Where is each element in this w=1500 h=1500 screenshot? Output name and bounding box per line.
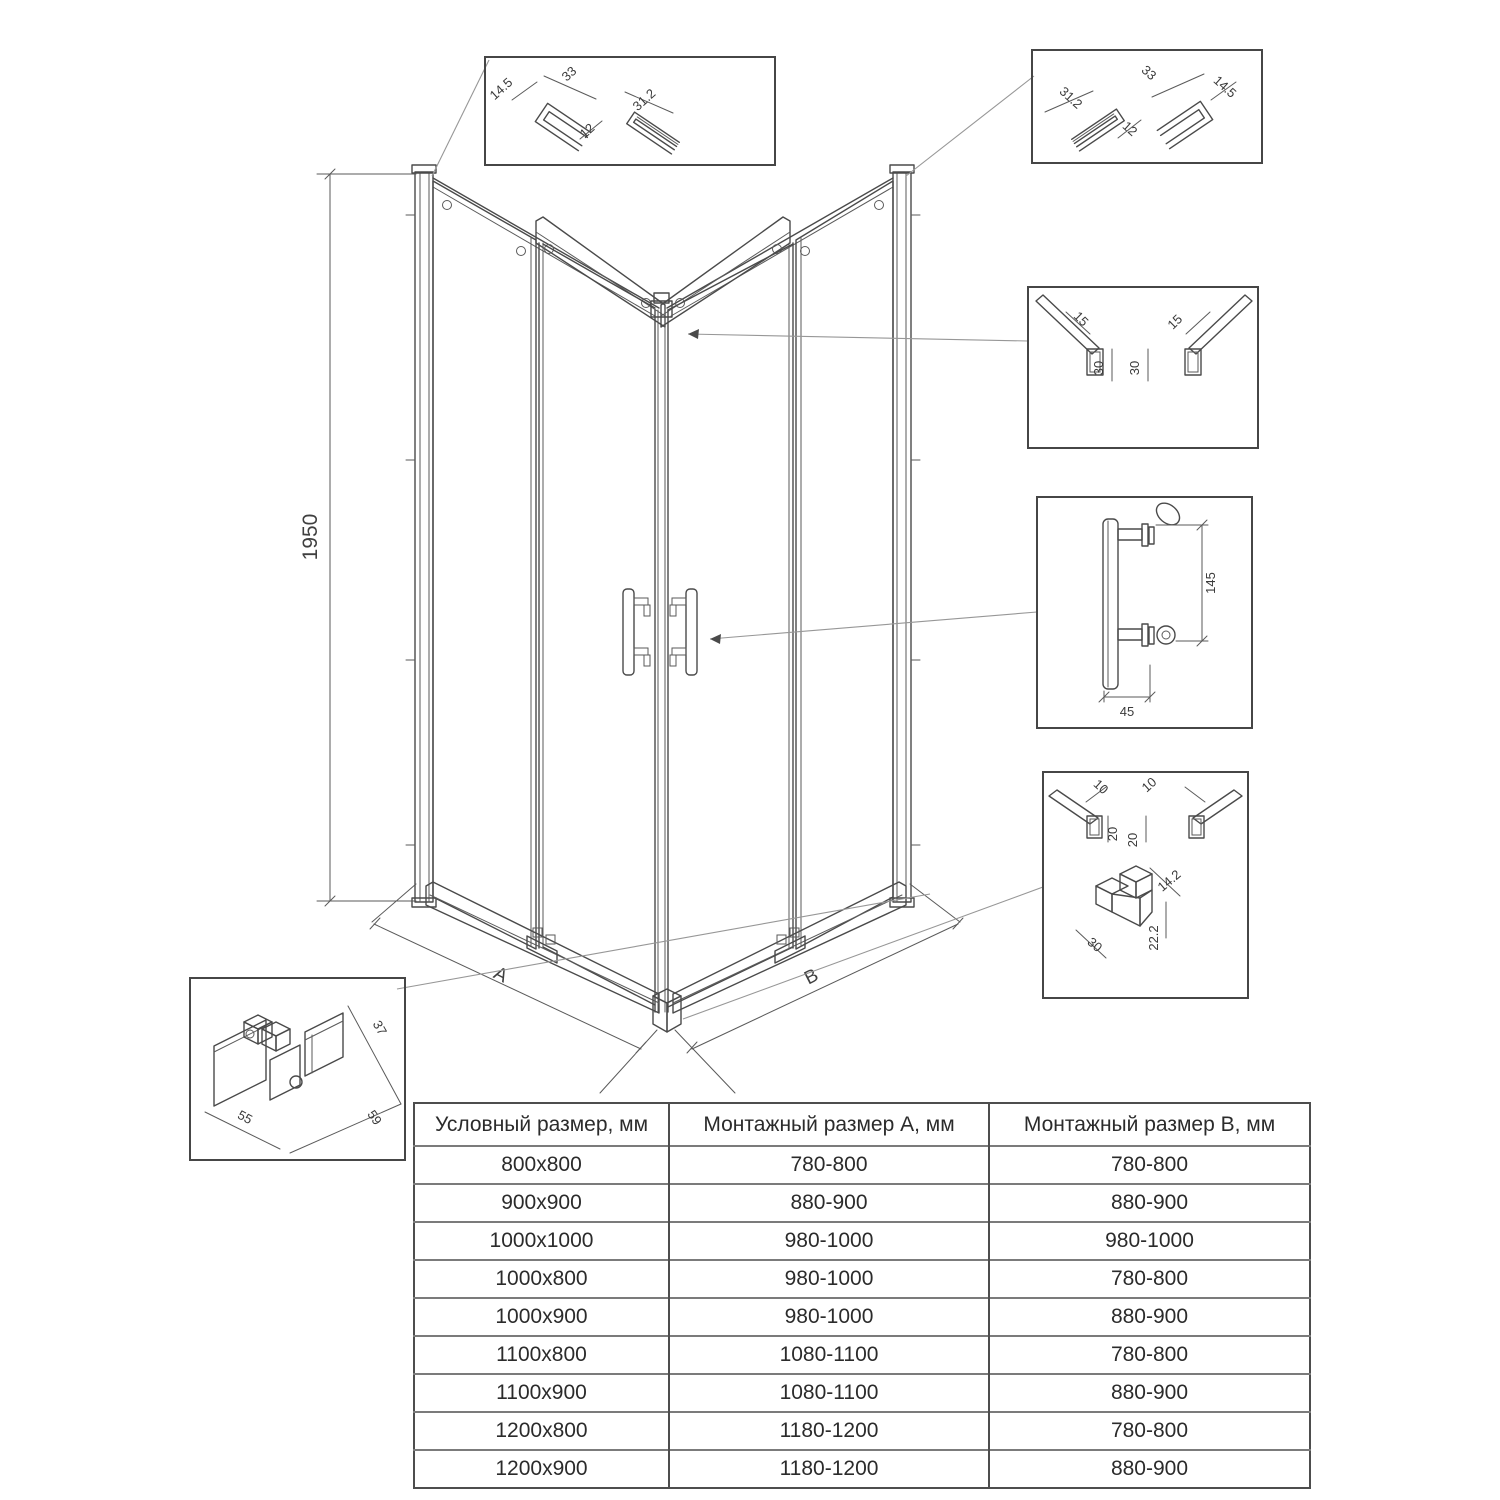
cell-size: 800x800 (414, 1146, 669, 1184)
dim-roller-55: 55 (235, 1107, 255, 1127)
table-row: 1200x800 1180-1200 780-800 (414, 1412, 1310, 1450)
right-wall-profile (890, 165, 920, 907)
cell-b: 780-800 (989, 1260, 1310, 1298)
door-handle-right (670, 589, 697, 675)
cell-a: 880-900 (669, 1184, 989, 1222)
width-b-label: B (801, 965, 822, 989)
cell-b: 880-900 (989, 1298, 1310, 1336)
table-row: 1100x800 1080-1100 780-800 (414, 1336, 1310, 1374)
sliding-door-left (539, 243, 655, 1005)
cell-b: 880-900 (989, 1450, 1310, 1488)
detail-box-roller: 37 55 59 (190, 978, 405, 1160)
dim-tr-0: 31.2 (1057, 84, 1086, 112)
dim-tl-2: 12 (577, 120, 598, 141)
detail-box-bottom-rail: 10 10 20 20 14.2 22.2 30 (1043, 772, 1248, 998)
col-header-nominal-size: Условный размер, мм (414, 1103, 669, 1146)
technical-drawing-page: 1950 A B (0, 0, 1500, 1500)
table-row: 1000x1000 980-1000 980-1000 (414, 1222, 1310, 1260)
dim-br-222: 22.2 (1146, 925, 1161, 950)
dim-mr-2: 30 (1091, 361, 1106, 375)
dim-tl-1: 33 (559, 63, 580, 84)
cell-a: 1180-1200 (669, 1412, 989, 1450)
dim-tl-0: 14.5 (487, 75, 516, 103)
cell-b: 780-800 (989, 1146, 1310, 1184)
dim-mr-0: 15 (1071, 308, 1092, 329)
detail-box-top-rail: 15 15 30 30 (1028, 287, 1258, 448)
left-wall-profile (406, 165, 436, 907)
top-rail-left (443, 201, 666, 328)
cell-size: 1100x800 (414, 1336, 669, 1374)
door-handle-left (623, 589, 650, 675)
sliding-door-right (668, 243, 793, 1007)
cell-a: 780-800 (669, 1146, 989, 1184)
cell-a: 980-1000 (669, 1260, 989, 1298)
cell-a: 1080-1100 (669, 1336, 989, 1374)
detail-box-handle: 145 45 (1037, 497, 1252, 728)
fixed-glass-right (796, 181, 893, 949)
height-dim-label: 1950 (299, 514, 322, 561)
dim-br-10a: 10 (1091, 776, 1112, 797)
cell-b: 780-800 (989, 1336, 1310, 1374)
corner-post (651, 293, 672, 1012)
dim-br-10b: 10 (1139, 774, 1160, 795)
cell-b: 980-1000 (989, 1222, 1310, 1260)
table-header-row: Условный размер, мм Монтажный размер А, … (414, 1103, 1310, 1146)
cell-b: 880-900 (989, 1374, 1310, 1412)
col-header-mount-size-a: Монтажный размер А, мм (669, 1103, 989, 1146)
cell-size: 1000x800 (414, 1260, 669, 1298)
table-row: 1200x900 1180-1200 880-900 (414, 1450, 1310, 1488)
detail-box-wall-profile-left: 14.5 33 12 31.2 (485, 57, 775, 165)
dim-tr-3: 14.5 (1211, 73, 1240, 101)
dim-br-142: 14.2 (1155, 867, 1184, 895)
col-header-mount-size-b: Монтажный размер В, мм (989, 1103, 1310, 1146)
dim-tl-3: 31.2 (630, 86, 659, 114)
dim-roller-37: 37 (370, 1018, 390, 1038)
dim-br-20b: 20 (1125, 833, 1140, 847)
height-dimension: 1950 (299, 169, 416, 906)
table-row: 1100x900 1080-1100 880-900 (414, 1374, 1310, 1412)
cell-size: 900x900 (414, 1184, 669, 1222)
dim-mr-1: 15 (1164, 311, 1185, 332)
size-spec-table: Условный размер, мм Монтажный размер А, … (413, 1102, 1311, 1489)
cell-a: 1080-1100 (669, 1374, 989, 1412)
dim-tr-2: 33 (1139, 62, 1160, 83)
width-a-label: A (490, 963, 511, 988)
dim-br-20a: 20 (1105, 827, 1120, 841)
dim-roller-59: 59 (364, 1107, 385, 1127)
cell-size: 1000x1000 (414, 1222, 669, 1260)
dim-br-30: 30 (1085, 934, 1106, 955)
callout-leader-lines (397, 60, 1043, 1019)
dim-handle-145: 145 (1203, 572, 1218, 594)
table-row: 900x900 880-900 880-900 (414, 1184, 1310, 1222)
top-rail-right (661, 201, 884, 328)
cell-a: 1180-1200 (669, 1450, 989, 1488)
cell-a: 980-1000 (669, 1298, 989, 1336)
cell-size: 1100x900 (414, 1374, 669, 1412)
table-row: 1000x800 980-1000 780-800 (414, 1260, 1310, 1298)
dim-mr-3: 30 (1127, 361, 1142, 375)
fixed-glass-left (433, 181, 536, 949)
dim-handle-45: 45 (1120, 704, 1134, 719)
table-row: 1000x900 980-1000 880-900 (414, 1298, 1310, 1336)
cell-a: 980-1000 (669, 1222, 989, 1260)
cell-size: 1000x900 (414, 1298, 669, 1336)
main-isometric-view: 1950 A B (299, 165, 963, 1093)
cell-size: 1200x900 (414, 1450, 669, 1488)
cell-size: 1200x800 (414, 1412, 669, 1450)
cell-b: 880-900 (989, 1184, 1310, 1222)
detail-box-wall-profile-right: 31.2 12 33 14.5 (1032, 50, 1262, 163)
cell-b: 780-800 (989, 1412, 1310, 1450)
table-row: 800x800 780-800 780-800 (414, 1146, 1310, 1184)
top-edges (433, 178, 893, 316)
